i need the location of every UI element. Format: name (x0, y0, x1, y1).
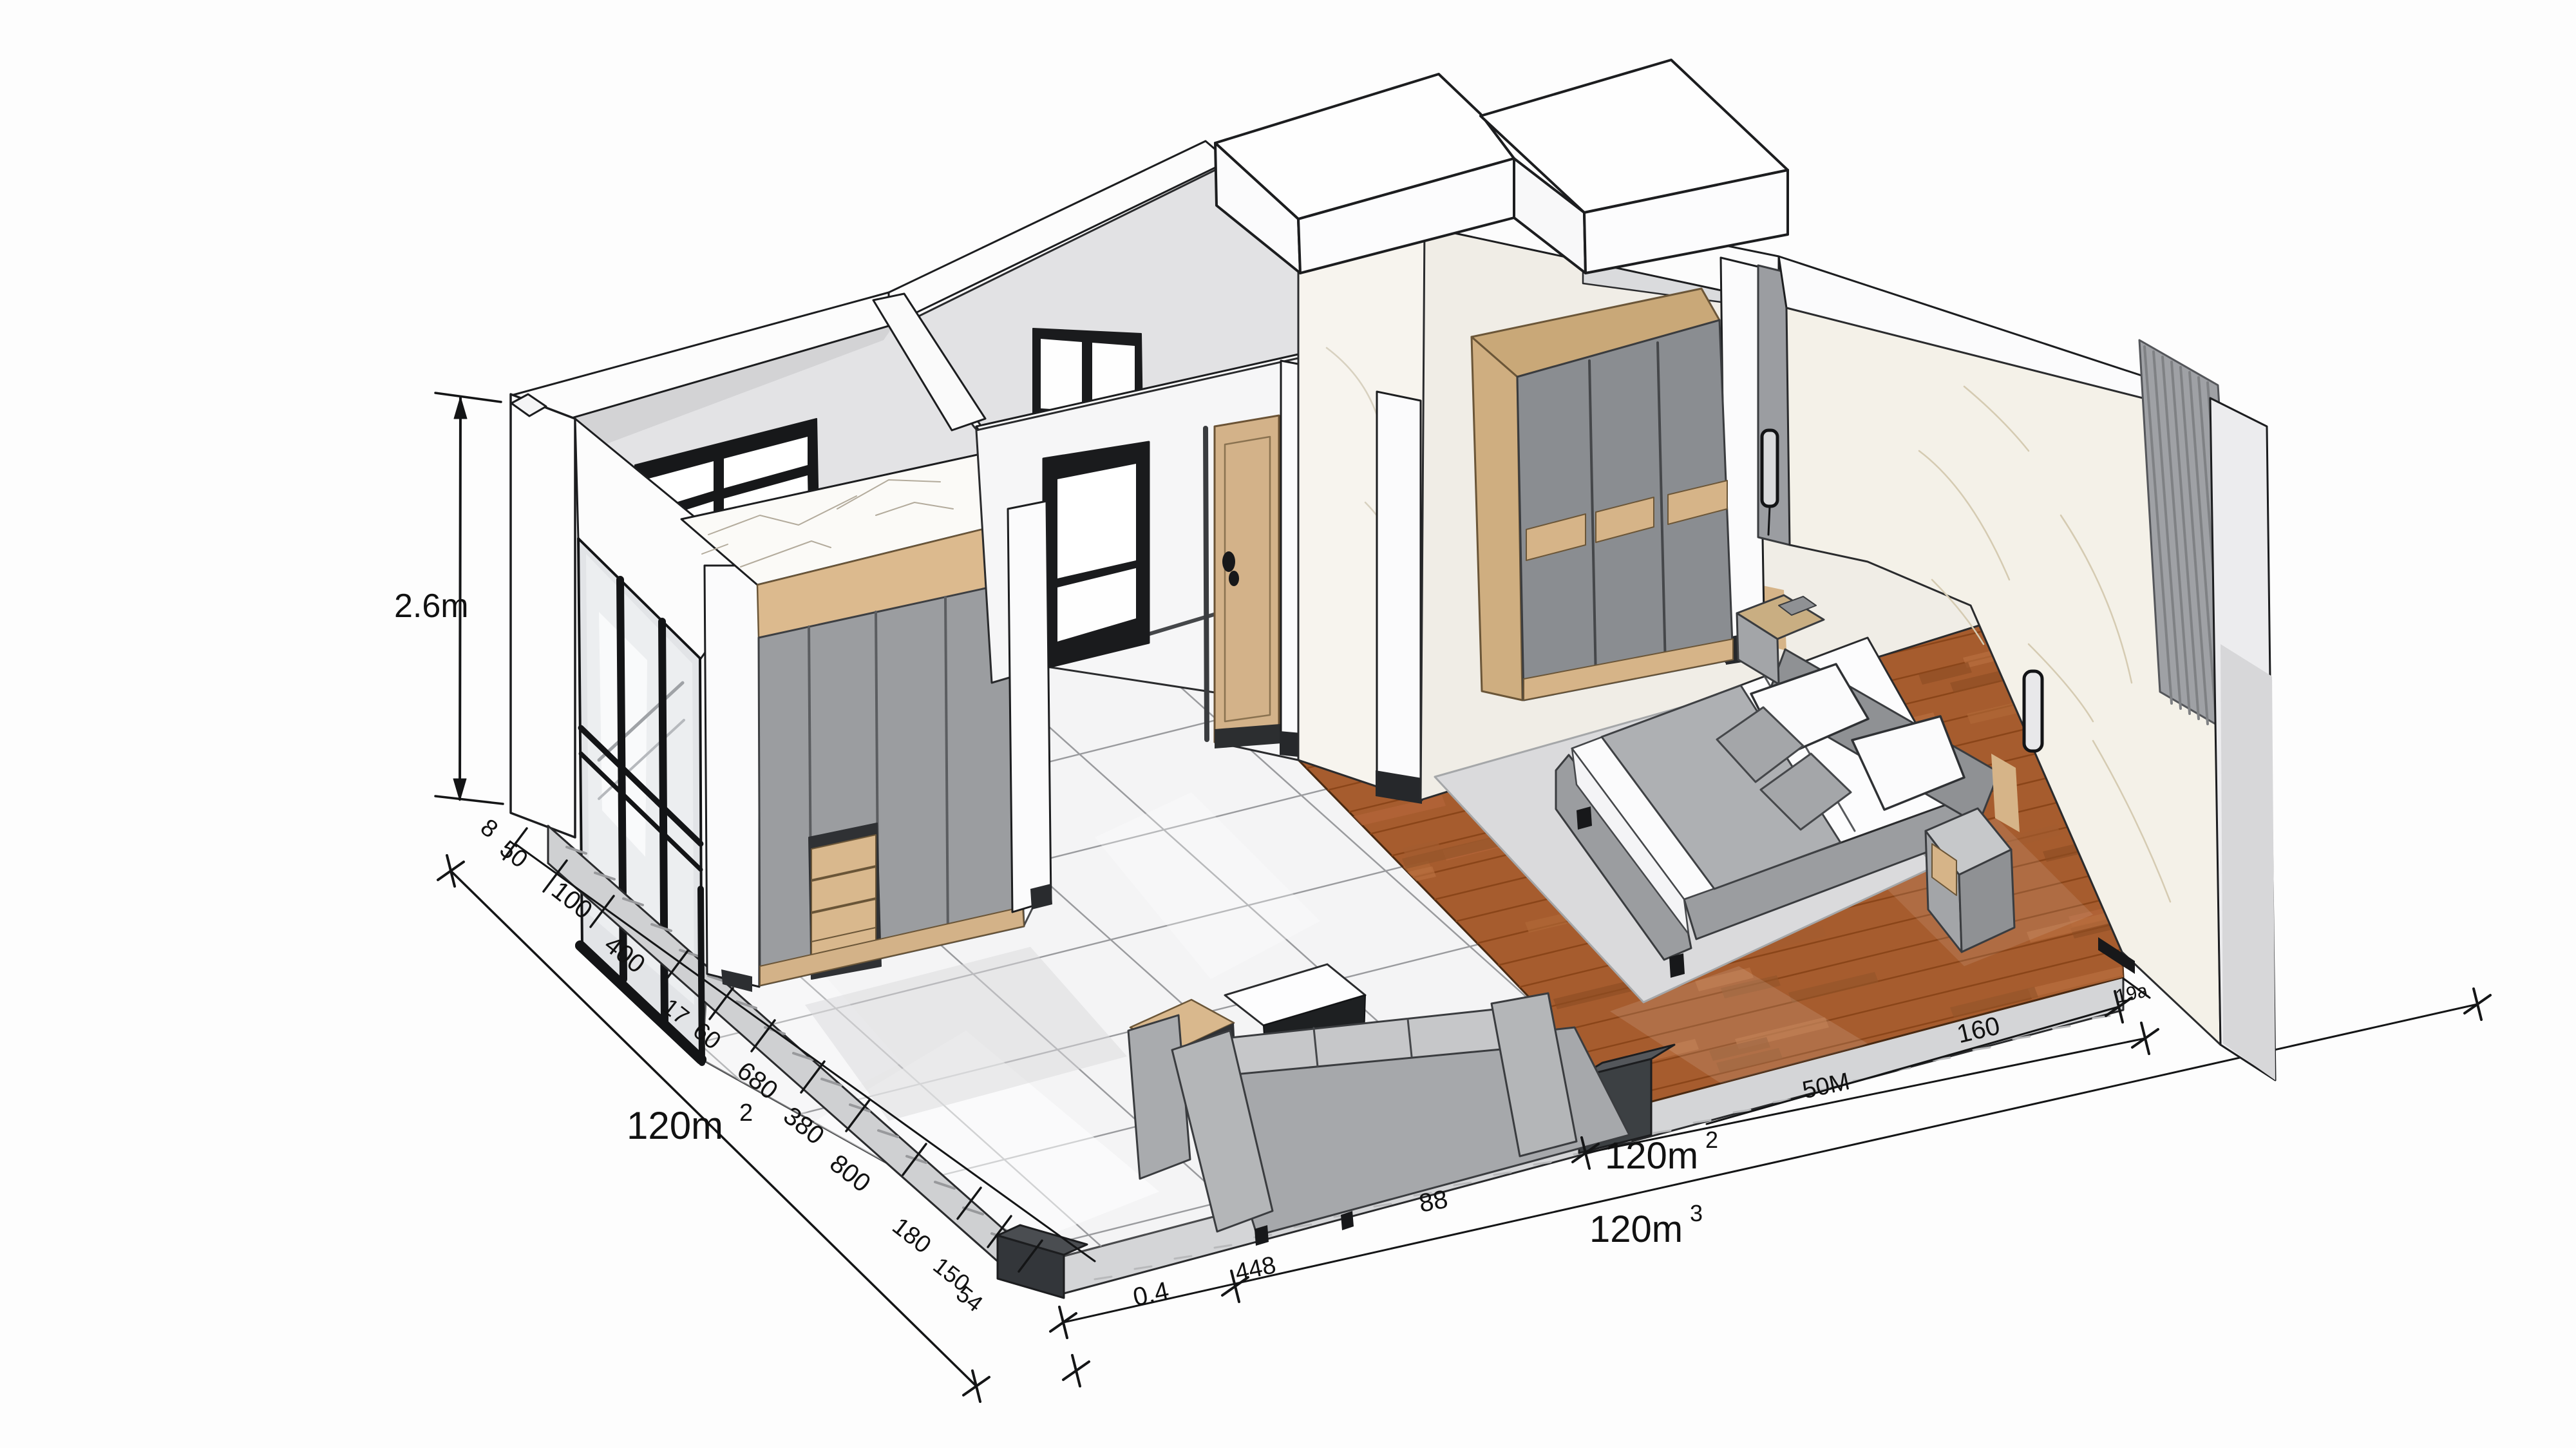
svg-text:2: 2 (1705, 1127, 1718, 1153)
svg-text:3: 3 (1690, 1200, 1703, 1226)
svg-text:120m: 120m (627, 1104, 723, 1147)
svg-text:120m: 120m (1589, 1208, 1683, 1250)
svg-text:120m: 120m (1605, 1135, 1698, 1177)
svg-text:2: 2 (739, 1100, 753, 1127)
svg-text:2.6m: 2.6m (394, 587, 469, 625)
svg-text:88: 88 (1417, 1185, 1450, 1218)
